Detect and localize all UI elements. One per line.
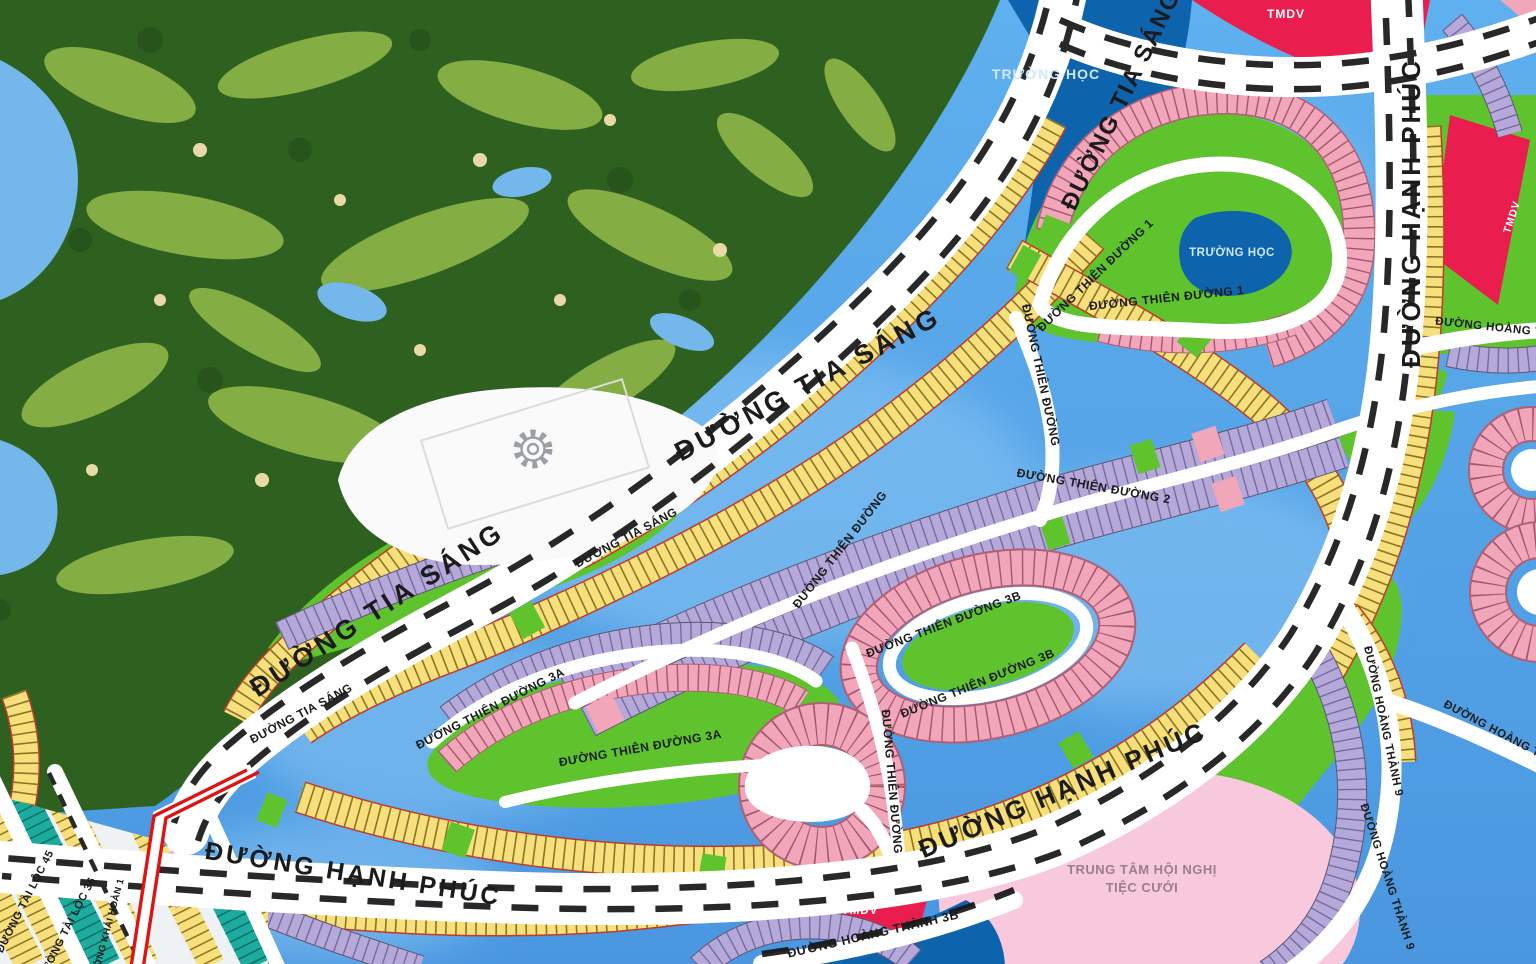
master-plan-map[interactable]: ĐƯỜNG TIA SÁNGĐƯỜNG TIA SÁNGĐƯỜNG TIA SÁ… [0,0,1536,964]
area-school-inner: TRƯỜNG HỌC [1189,246,1275,259]
area-tmdv-bottom: TMDV [842,905,879,917]
area-tmdv-top: TMDV [1267,7,1305,21]
area-event-center-line2: TIỆC CƯỚI [1106,880,1179,895]
area-event-center-line1: TRUNG TÂM HỘI NGHỊ [1067,862,1217,877]
area-school-top: TRƯỜNG HỌC [992,65,1100,82]
map-canvas[interactable]: ĐƯỜNG TIA SÁNGĐƯỜNG TIA SÁNGĐƯỜNG TIA SÁ… [0,0,1536,964]
road-hanh-phuc-right: ĐƯỜNG HẠNH PHÚC [1396,58,1426,368]
